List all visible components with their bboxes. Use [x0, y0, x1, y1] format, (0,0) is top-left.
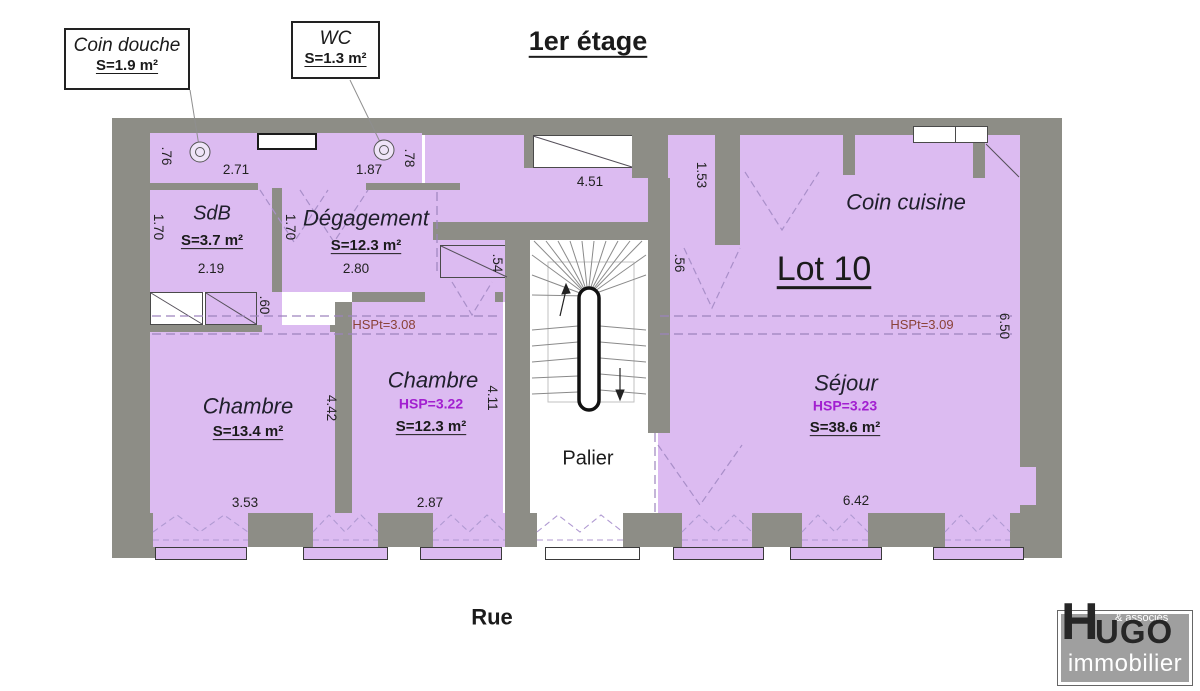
dim-sdb-height: 1.70: [151, 214, 165, 240]
window-bay: [153, 513, 248, 547]
dim-alcove1-width: 2.71: [223, 163, 249, 177]
door-gap: [425, 292, 495, 302]
room-label-sdb: SdB: [193, 204, 231, 225]
dim-alcove2-width: 1.87: [356, 163, 382, 177]
agency-logo: & associés H UGO immobilier: [1053, 600, 1197, 688]
dim-alcove1-depth: .76: [159, 147, 173, 166]
page-title: 1er étage: [529, 27, 648, 55]
dim-closet-depth: .54: [490, 254, 504, 273]
callout-wc-area: S=1.3 m²: [293, 50, 378, 67]
window-sill: [420, 547, 502, 560]
room-area-degagement: S=12.3 m²: [331, 238, 401, 254]
callout-wc-name: WC: [293, 28, 378, 50]
dim-chambre2-height: 4.11: [485, 385, 499, 410]
wall-stub-skylight-right: [633, 135, 642, 168]
agency-logo-h: H: [1061, 592, 1099, 652]
room-label-coin-cuisine: Coin cuisine: [846, 190, 966, 213]
dim-degagement-height: 1.70: [283, 214, 297, 240]
wall-stub-skylight-left: [524, 135, 533, 168]
room-label-sejour: Séjour: [814, 371, 878, 394]
room-area-chambre1: S=13.4 m²: [213, 424, 283, 440]
dim-alcove2-depth: .78: [402, 149, 416, 168]
wall-niche-divider: [955, 126, 956, 143]
window-sill: [933, 547, 1024, 560]
dim-degagement-width: 2.80: [343, 262, 369, 276]
floor-plan-page: Coin douche S=1.9 m² WC S=1.3 m² 1er éta…: [0, 0, 1200, 691]
dim-chambre1-width: 3.53: [232, 496, 258, 510]
wall-stub-kitchen: [843, 135, 855, 175]
agency-logo-rest: UGO: [1095, 613, 1173, 651]
door-gap: [262, 325, 330, 332]
dim-flue-width: .60: [257, 296, 271, 315]
dim-corridor-right-height: 1.53: [694, 162, 708, 188]
wall-niche: [913, 126, 988, 143]
room-area-chambre2: S=12.3 m²: [396, 419, 466, 435]
palier-landing: [530, 433, 658, 513]
dim-sejour-width: 6.42: [843, 494, 869, 508]
lot-label: Lot 10: [777, 252, 872, 288]
room-hsp-sejour: HSP=3.23: [813, 399, 877, 414]
window-sill: [790, 547, 882, 560]
room-label-palier: Palier: [562, 449, 613, 470]
window-sill: [303, 547, 388, 560]
room-label-degagement: Dégagement: [303, 206, 429, 229]
flue-box-purple: [205, 292, 257, 325]
room-area-sejour: S=38.6 m²: [810, 420, 880, 436]
wall-stair-top: [433, 222, 653, 240]
window-bay: [682, 513, 752, 547]
wall-stub-corner: [973, 143, 985, 178]
agency-logo-sub: immobilier: [1063, 650, 1187, 678]
room-corridor-right: [668, 135, 715, 303]
window-bay: [802, 513, 868, 547]
callout-coin-douche-name: Coin douche: [66, 35, 188, 57]
window-sill: [673, 547, 764, 560]
corner-flue-square: [985, 143, 1020, 178]
room-corridor-top-west: [425, 135, 524, 168]
wall-bottom-left-foot: [112, 547, 160, 558]
skylight-box: [533, 135, 633, 168]
dim-door-width: .56: [672, 254, 686, 273]
dim-chambre1-height: 4.42: [324, 395, 338, 421]
dim-sejour-height: 6.50: [997, 313, 1011, 339]
wall-stair-right: [648, 178, 670, 433]
wall-notch: [257, 133, 317, 150]
window-bay: [945, 513, 1010, 547]
ceiling-label-left: HSPt=3.08: [352, 318, 415, 332]
room-sejour-recess: [1020, 467, 1036, 505]
window-sill: [155, 547, 247, 560]
street-label: Rue: [471, 605, 513, 628]
flue-box-white: [150, 292, 203, 325]
wall-stair-left: [505, 240, 530, 513]
room-label-chambre2: Chambre: [388, 368, 478, 391]
dim-corridor-top-width: 4.51: [577, 175, 603, 189]
window-sill-stair: [545, 547, 640, 560]
room-hsp-chambre2: HSP=3.22: [399, 397, 463, 412]
room-area-sdb: S=3.7 m²: [181, 233, 243, 249]
wall-corridor-lot10: [715, 135, 740, 245]
room-door-strip: [715, 245, 740, 303]
dim-sdb-width: 2.19: [198, 262, 224, 276]
callout-wc: WC S=1.3 m²: [291, 21, 380, 79]
wall-sdb-degagement: [272, 188, 282, 292]
dim-chambre2-width: 2.87: [417, 496, 443, 510]
callout-coin-douche-area: S=1.9 m²: [66, 57, 188, 74]
window-bay: [433, 513, 505, 547]
room-label-chambre1: Chambre: [203, 394, 293, 417]
callout-coin-douche: Coin douche S=1.9 m²: [64, 28, 190, 90]
wall-left: [112, 118, 150, 555]
ceiling-label-right: HSPt=3.09: [890, 318, 953, 332]
window-bay: [313, 513, 378, 547]
window-bay-stair: [537, 513, 623, 547]
